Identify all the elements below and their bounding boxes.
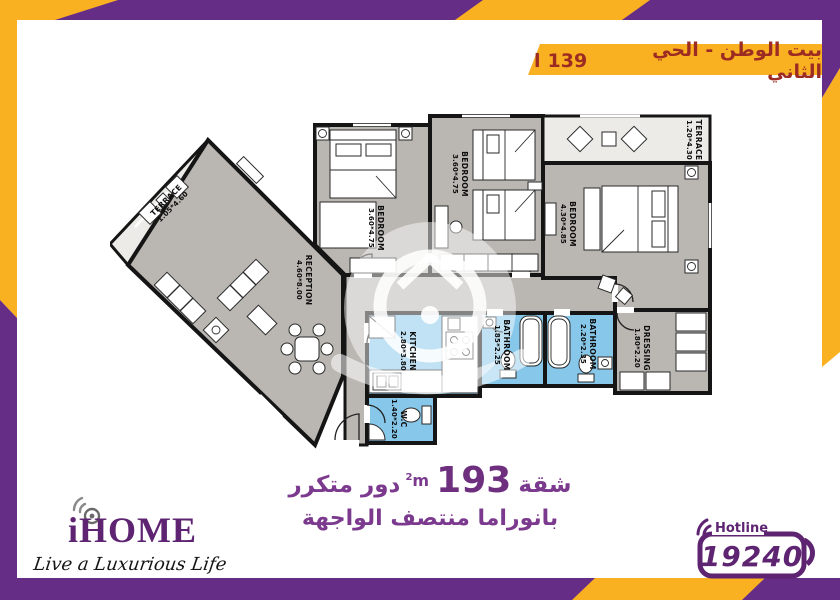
svg-text:BATHROOM: BATHROOM	[588, 318, 597, 369]
flyer-page: بيت الوطن - الحي الثاني 139 l	[0, 0, 840, 600]
dining-table	[295, 337, 319, 361]
frame-left-yellow	[0, 18, 17, 318]
svg-text:1.20*4.30: 1.20*4.30	[685, 120, 693, 160]
svg-text:BEDROOM: BEDROOM	[568, 201, 577, 247]
frame-left-purple	[0, 300, 17, 600]
svg-text:1.85*2.25: 1.85*2.25	[493, 325, 501, 365]
frame-top-mid-yellow	[455, 0, 650, 20]
svg-text:W.C: W.C	[399, 410, 408, 427]
area-prefix: شقة	[518, 472, 571, 498]
area-text: شقة 193 2m دور متكرر	[220, 460, 640, 501]
banner-title: بيت الوطن - الحي الثاني	[594, 39, 822, 83]
svg-text:BATHROOM: BATHROOM	[502, 319, 511, 370]
svg-text:3.60*4.75: 3.60*4.75	[367, 208, 375, 248]
svg-text:BEDROOM: BEDROOM	[460, 151, 469, 197]
panorama-text: بانوراما منتصف الواجهة	[220, 506, 640, 531]
svg-text:DRESSING: DRESSING	[642, 325, 651, 371]
frame-right-yellow	[822, 68, 840, 367]
hotline-badge: Hotline 19240	[688, 514, 820, 584]
svg-text:1.40*2.20: 1.40*2.20	[390, 399, 398, 439]
ihome-wordmark: iHOME	[68, 512, 197, 548]
area-value: 193	[436, 460, 511, 501]
area-unit: 2m	[405, 471, 429, 490]
banner: بيت الوطن - الحي الثاني 139 l	[534, 45, 822, 76]
svg-text:RECEPTION: RECEPTION	[304, 255, 313, 306]
frame-top-left-yellow	[0, 0, 118, 20]
svg-text:1.80*2.20: 1.80*2.20	[633, 328, 641, 368]
svg-text:KITCHEN: KITCHEN	[408, 331, 417, 370]
svg-text:2.80*3.80: 2.80*3.80	[399, 331, 407, 371]
frame-band-top	[0, 0, 840, 20]
svg-text:BEDROOM: BEDROOM	[376, 205, 385, 251]
floor-plan: TERRACE 1.05*4.60 RECEPTION 4.60*8.00 BE…	[110, 108, 725, 453]
svg-text:4.30*4.85: 4.30*4.85	[559, 204, 567, 244]
hotline-label: Hotline	[715, 521, 768, 536]
banner-unit-number: 139	[548, 50, 588, 72]
banner-unit-suffix: l	[534, 50, 541, 72]
area-suffix: دور متكرر	[288, 472, 400, 498]
svg-text:3.60*4.75: 3.60*4.75	[451, 154, 459, 194]
ihome-tagline: Live a Luxurious Life	[29, 554, 232, 575]
svg-text:2.20*2.35: 2.20*2.35	[579, 324, 587, 364]
hotline-number: 19240	[701, 540, 803, 573]
ihome-logo: iHOME Live a Luxurious Life	[28, 500, 228, 580]
svg-text:TERRACE: TERRACE	[694, 120, 703, 161]
frame-right-purple	[822, 20, 840, 98]
svg-text:4.60*8.00: 4.60*8.00	[295, 260, 303, 300]
